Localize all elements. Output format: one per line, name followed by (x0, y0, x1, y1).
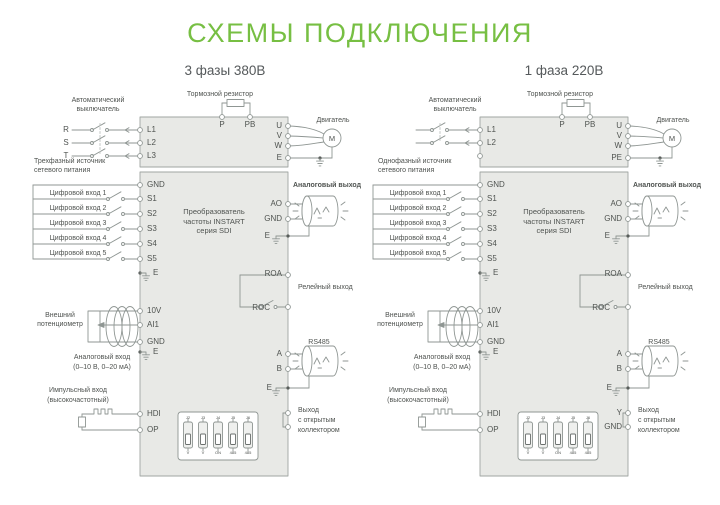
dip-switch-4-bottom-label: 485 (570, 451, 577, 455)
breaker-label-line1: Автоматический (72, 97, 125, 104)
digital-input-4-label: Цифровой вход 4 (390, 235, 447, 242)
terminal-l2: L2 (487, 139, 496, 147)
open-collector-label-line2: с открытым (638, 417, 675, 424)
terminal-e-rs485: E (267, 384, 272, 392)
digital-input-1-label: Цифровой вход 1 (50, 190, 107, 197)
breaker-label-line2: выключатель (434, 106, 477, 113)
terminal-e-top: E (493, 269, 498, 277)
converter-name-line1: Преобразователь (183, 208, 244, 216)
terminal-ai1: AI1 (487, 321, 499, 329)
dip-switch-5-top-label: J6 (246, 416, 250, 420)
converter-name-line2: частоты INSTART (183, 218, 245, 226)
source-label-line2: сетевого питания (34, 167, 90, 174)
terminal-ao: AO (270, 200, 282, 208)
terminal-gnd-ao: GND (604, 215, 622, 223)
analog-input-label-line1: Аналоговый вход (74, 354, 130, 361)
subtitle-3-phase: 3 фазы 380В (185, 63, 266, 78)
terminal-p: P (219, 121, 224, 129)
terminal-v: V (617, 132, 622, 140)
diagram-1-phase-220v: Тормозной резисторАвтоматическийвыключат… (370, 90, 715, 492)
terminal-s4: S4 (147, 240, 157, 248)
rs485-label: RS485 (648, 339, 669, 346)
terminal-op: OP (487, 426, 499, 434)
brake-resistor-label: Тормозной резистор (527, 91, 593, 98)
dip-switch-3-bottom-label: ON (555, 451, 561, 455)
digital-input-4-label: Цифровой вход 4 (50, 235, 107, 242)
analog-input-label-line2: (0–10 В, 0–20 мА) (413, 364, 471, 371)
terminal-s2: S2 (487, 210, 497, 218)
terminal-roc: ROC (252, 304, 270, 312)
terminal-10v: 10V (487, 307, 501, 315)
potentiometer-label-line1: Внешний (45, 312, 75, 319)
open-collector-label-line2: с открытым (298, 417, 335, 424)
terminal-e-top: E (153, 269, 158, 277)
analog-output-label: Аналоговый выход (633, 182, 701, 189)
terminal-pb: PB (245, 121, 256, 129)
terminal-s4: S4 (487, 240, 497, 248)
terminal-v: V (277, 132, 282, 140)
dip-switch-5-bottom-label: 485 (245, 451, 252, 455)
terminal-ao: AO (610, 200, 622, 208)
open-collector-label-line3: коллектором (638, 427, 680, 434)
dip-switch-2-bottom-label: V (202, 451, 205, 455)
dip-switch-3-top-label: J4 (556, 416, 560, 420)
breaker-label-line1: Автоматический (429, 97, 482, 104)
dip-switch-1-top-label: J2 (186, 416, 190, 420)
dip-switch-4-top-label: J5 (231, 416, 235, 420)
digital-input-2-label: Цифровой вход 2 (390, 205, 447, 212)
terminal-pb: PB (585, 121, 596, 129)
pulse-input-label-line1: Импульсный вход (49, 387, 107, 394)
terminal-s3: S3 (487, 225, 497, 233)
source-label-line2: сетевого питания (378, 167, 434, 174)
terminal-roc: ROC (592, 304, 610, 312)
terminal-s1: S1 (147, 195, 157, 203)
source-label-line1: Трехфазный источник (34, 158, 105, 165)
open-collector-label-line3: коллектором (298, 427, 340, 434)
terminal-e-motor: E (277, 154, 282, 162)
terminal-s1: S1 (487, 195, 497, 203)
terminal-e-ao: E (605, 232, 610, 240)
brake-resistor-label: Тормозной резистор (187, 91, 253, 98)
dip-switch-2-top-label: J3 (201, 416, 205, 420)
terminal-w: W (614, 142, 622, 150)
pulse-input-label-line2: (высокочастотный) (387, 397, 449, 404)
terminal-l1: L1 (487, 126, 496, 134)
digital-input-3-label: Цифровой вход 3 (50, 220, 107, 227)
subtitle-1-phase: 1 фаза 220В (525, 63, 604, 78)
analog-output-label: Аналоговый выход (293, 182, 361, 189)
connection-diagrams-page: СХЕМЫ ПОДКЛЮЧЕНИЯ 3 фазы 380В 1 фаза 220… (0, 0, 720, 505)
breaker-label-line2: выключатель (77, 106, 120, 113)
converter-name-line1: Преобразователь (523, 208, 584, 216)
terminal-a: A (617, 350, 622, 358)
relay-output-label: Релейный выход (298, 284, 353, 291)
terminal-e-analog: E (493, 348, 498, 356)
dip-switch-1-bottom-label: V (527, 451, 530, 455)
dip-switch-4-bottom-label: 485 (230, 451, 237, 455)
terminal-s2: S2 (147, 210, 157, 218)
terminal-s5: S5 (147, 255, 157, 263)
dip-switch-2-bottom-label: V (542, 451, 545, 455)
digital-input-3-label: Цифровой вход 3 (390, 220, 447, 227)
dip-switch-1-bottom-label: V (187, 451, 190, 455)
dip-switch-1-top-label: J2 (526, 416, 530, 420)
dip-switch-5-top-label: J6 (586, 416, 590, 420)
digital-input-2-label: Цифровой вход 2 (50, 205, 107, 212)
terminal-l1: L1 (147, 126, 156, 134)
rs485-label: RS485 (308, 339, 329, 346)
terminal-10v: 10V (147, 307, 161, 315)
diagram-3-phases-380v: Тормозной резисторАвтоматическийвыключат… (30, 90, 375, 492)
terminal-u: U (616, 122, 622, 130)
open-collector-label-line1: Выход (298, 407, 319, 414)
terminal-gnd-analog: GND (487, 338, 505, 346)
terminal-roa: ROA (605, 270, 622, 278)
terminal-l2: L2 (147, 139, 156, 147)
pulse-input-label-line1: Импульсный вход (389, 387, 447, 394)
analog-input-label-line1: Аналоговый вход (414, 354, 470, 361)
dip-switch-3-bottom-label: ON (215, 451, 221, 455)
terminal-hdi: HDI (147, 410, 161, 418)
terminal-s3: S3 (147, 225, 157, 233)
terminal-w: W (274, 142, 282, 150)
terminal-gnd-ao: GND (264, 215, 282, 223)
terminal-gnd-oc: GND (604, 423, 622, 431)
dip-switch-3-top-label: J4 (216, 416, 220, 420)
pulse-input-label-line2: (высокочастотный) (47, 397, 109, 404)
dip-switch-2-top-label: J3 (541, 416, 545, 420)
motor-m: M (669, 135, 675, 143)
terminal-ai1: AI1 (147, 321, 159, 329)
terminal-gnd-top: GND (487, 181, 505, 189)
terminal-l3: L3 (147, 152, 156, 160)
converter-name-line2: частоты INSTART (523, 218, 585, 226)
motor-label: Двигатель (656, 117, 689, 124)
digital-input-1-label: Цифровой вход 1 (390, 190, 447, 197)
converter-name-line3: серия SDI (537, 227, 572, 235)
source-label-line1: Однофазный источник (378, 158, 451, 165)
motor-label: Двигатель (316, 117, 349, 124)
analog-input-label-line2: (0–10 В, 0–20 мА) (73, 364, 131, 371)
motor-m: M (329, 135, 335, 143)
terminal-b: B (277, 365, 282, 373)
terminal-op: OP (147, 426, 159, 434)
terminal-gnd-top: GND (147, 181, 165, 189)
potentiometer-label-line2: потенциометр (377, 321, 423, 328)
terminal-y: Y (617, 409, 622, 417)
terminal-roa: ROA (265, 270, 282, 278)
digital-input-5-label: Цифровой вход 5 (390, 250, 447, 257)
relay-output-label: Релейный выход (638, 284, 693, 291)
terminal-e-analog: E (153, 348, 158, 356)
terminal-s5: S5 (487, 255, 497, 263)
dip-switch-5-bottom-label: 485 (585, 451, 592, 455)
page-title: СХЕМЫ ПОДКЛЮЧЕНИЯ (187, 18, 533, 49)
digital-input-5-label: Цифровой вход 5 (50, 250, 107, 257)
terminal-u: U (276, 122, 282, 130)
terminal-hdi: HDI (487, 410, 501, 418)
potentiometer-label-line2: потенциометр (37, 321, 83, 328)
dip-switch-4-top-label: J5 (571, 416, 575, 420)
terminal-p: P (559, 121, 564, 129)
terminal-a: A (277, 350, 282, 358)
terminal-pe: PE (611, 154, 622, 162)
phase-r-label: R (63, 126, 69, 134)
open-collector-label-line1: Выход (638, 407, 659, 414)
terminal-e-ao: E (265, 232, 270, 240)
terminal-b: B (617, 365, 622, 373)
phase-s-label: S (63, 139, 68, 147)
converter-name-line3: серия SDI (197, 227, 232, 235)
terminal-e-rs485: E (607, 384, 612, 392)
terminal-gnd-analog: GND (147, 338, 165, 346)
potentiometer-label-line1: Внешний (385, 312, 415, 319)
